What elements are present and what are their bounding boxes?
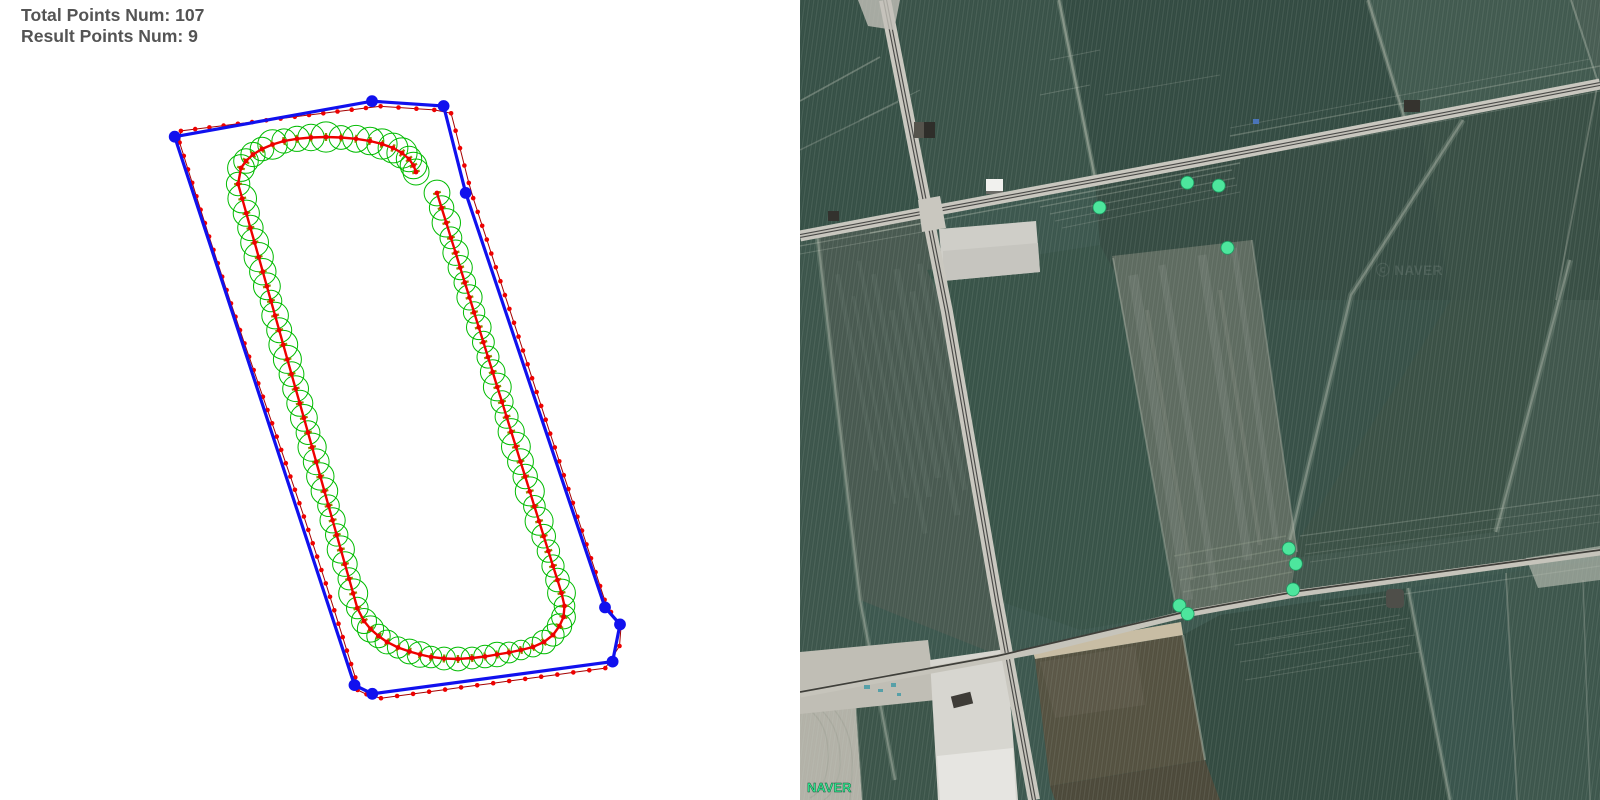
svg-text:ⓒ NAVER: ⓒ NAVER xyxy=(1376,262,1443,278)
svg-text:NAVER: NAVER xyxy=(807,780,852,795)
